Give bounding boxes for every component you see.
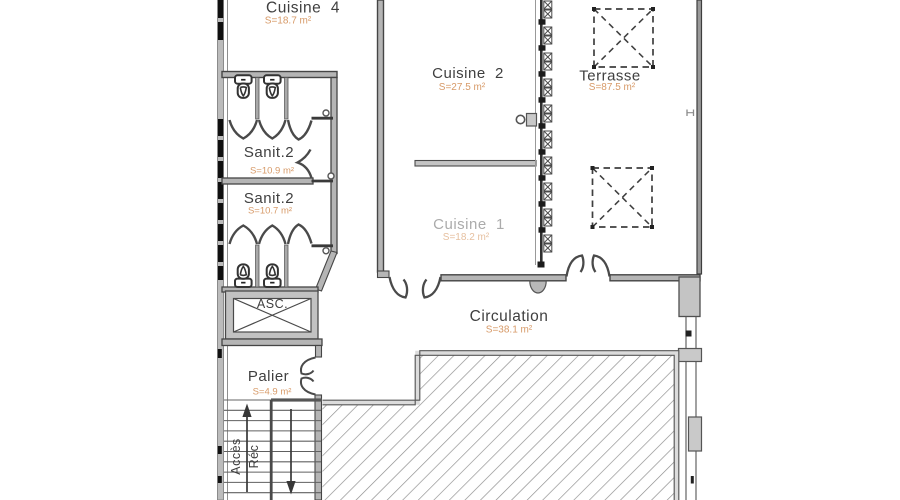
svg-text:Réc: Réc <box>247 445 261 469</box>
svg-text:Cuisine 2: Cuisine 2 <box>432 65 504 82</box>
svg-text:S=10.7 m²: S=10.7 m² <box>248 206 292 217</box>
svg-text:S=18.7 m²: S=18.7 m² <box>265 16 312 27</box>
svg-text:S=27.5 m²: S=27.5 m² <box>439 82 486 93</box>
svg-text:Sanit.2: Sanit.2 <box>244 144 294 161</box>
svg-text:S=38.1 m²: S=38.1 m² <box>486 325 533 336</box>
svg-text:S=18.2 m²: S=18.2 m² <box>443 232 490 243</box>
svg-text:Circulation: Circulation <box>470 308 549 325</box>
svg-text:Cuisine 4: Cuisine 4 <box>266 0 340 17</box>
svg-text:Accès: Accès <box>229 438 243 475</box>
svg-text:Palier: Palier <box>248 368 289 385</box>
svg-text:ASC.: ASC. <box>257 297 288 311</box>
svg-text:S=10.9 m²: S=10.9 m² <box>250 166 294 177</box>
svg-text:S=4.9 m²: S=4.9 m² <box>253 387 292 398</box>
svg-text:Sanit.2: Sanit.2 <box>244 190 294 207</box>
svg-text:S=87.5 m²: S=87.5 m² <box>589 82 636 93</box>
svg-text:Cuisine 1: Cuisine 1 <box>433 216 505 233</box>
